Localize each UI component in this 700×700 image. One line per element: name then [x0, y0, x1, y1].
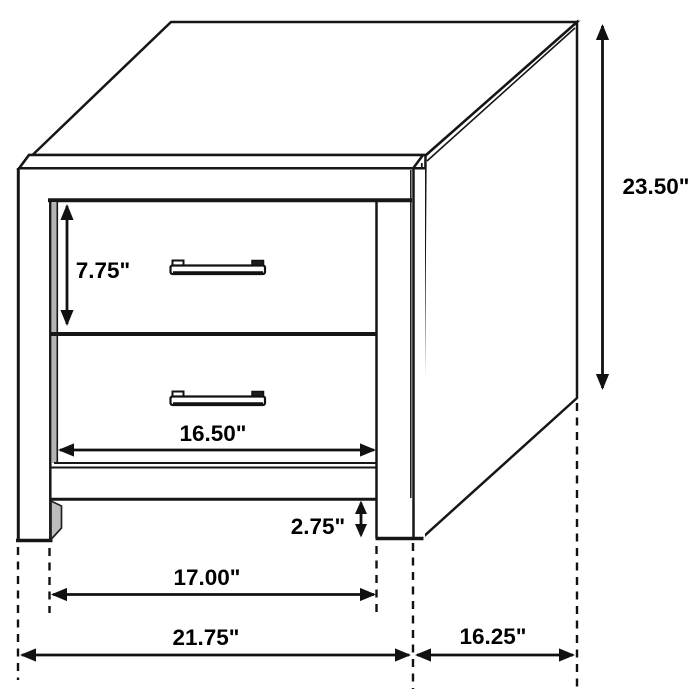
arrowhead-left-icon [51, 588, 67, 601]
dimension-overall-depth: 16.25" [415, 624, 575, 662]
front-face-base [17, 167, 425, 539]
dimension-label-leg-height: 2.75" [291, 514, 345, 539]
dimension-label-drawer-width: 16.50" [180, 421, 247, 446]
arrowhead-right-icon [360, 588, 376, 601]
nightstand-dimension-diagram: 7.75" 23.50" 16.50" 2.75" 17 [0, 0, 700, 700]
dimension-label-between-legs-width: 17.00" [174, 565, 241, 590]
arrowhead-right-icon [559, 648, 575, 661]
top-front-edge-band [19, 155, 423, 169]
dimension-overall-height: 23.50" [596, 24, 690, 390]
arrowhead-right-icon [395, 648, 411, 661]
arrowhead-up-icon [596, 24, 609, 40]
arrowhead-left-icon [415, 648, 431, 661]
dimension-between-legs-width: 17.00" [51, 565, 376, 601]
dimension-label-overall-depth: 16.25" [460, 624, 527, 649]
arrowhead-left-icon [20, 648, 36, 661]
arrowhead-down-icon [596, 374, 609, 390]
dimension-label-drawer-opening-height: 7.75" [76, 258, 130, 283]
dimension-drawing-page: 7.75" 23.50" 16.50" 2.75" 17 [0, 0, 700, 700]
cabinet-front [17, 167, 425, 541]
dimension-label-overall-height: 23.50" [623, 174, 690, 199]
dimension-overall-width: 21.75" [20, 625, 411, 662]
dimension-label-overall-width: 21.75" [173, 625, 240, 650]
